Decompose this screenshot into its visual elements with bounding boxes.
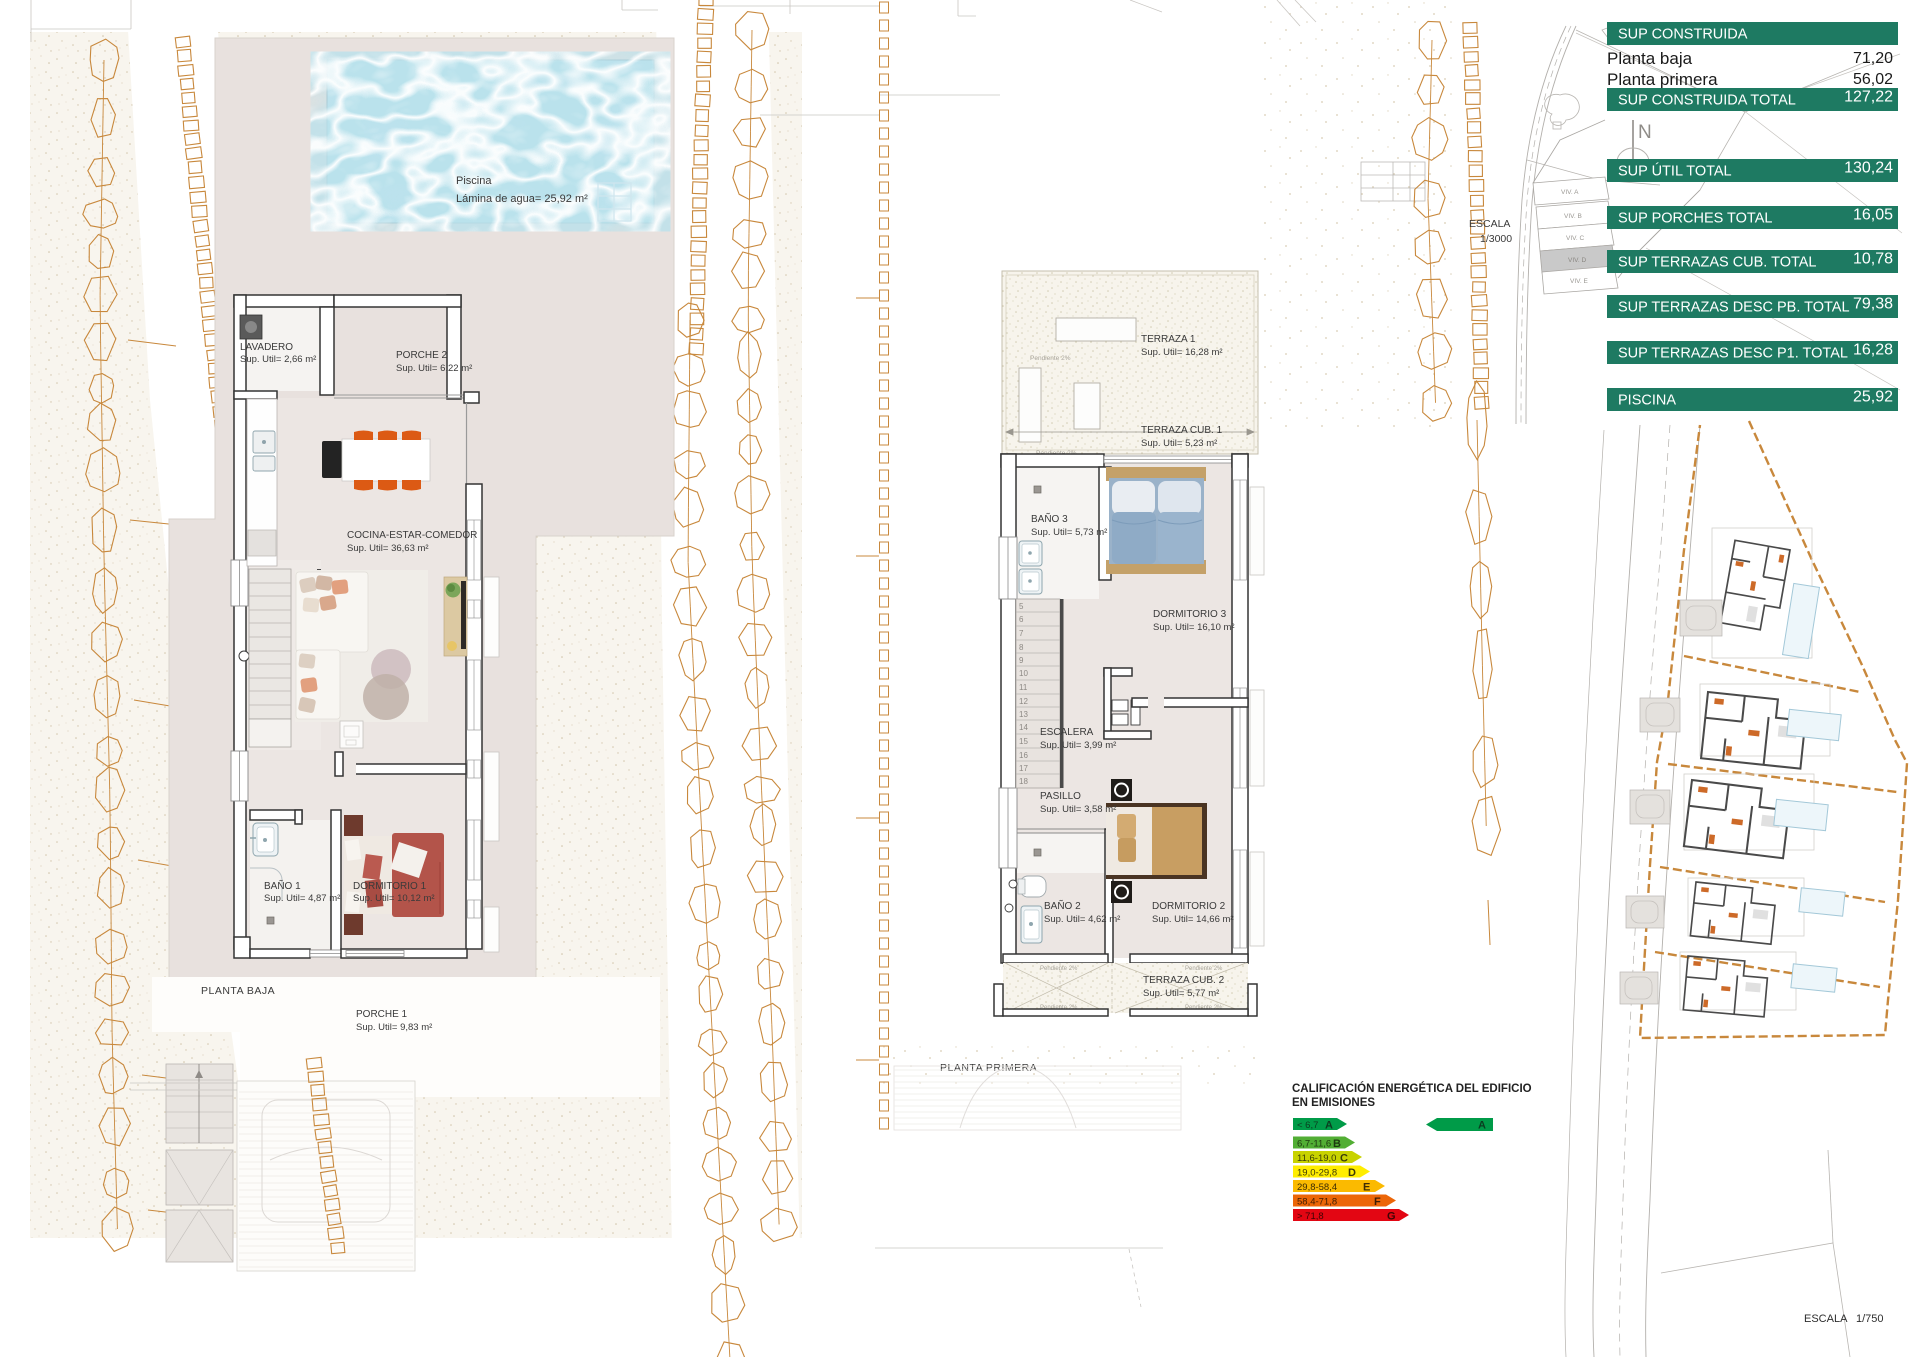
svg-text:11,6-19,0: 11,6-19,0 <box>1297 1153 1336 1164</box>
svg-text:12: 12 <box>1019 697 1028 706</box>
svg-text:56,02: 56,02 <box>1853 71 1893 88</box>
svg-text:TERRAZA 1: TERRAZA 1 <box>1141 334 1196 345</box>
svg-text:15: 15 <box>1019 737 1028 746</box>
svg-text:8: 8 <box>1019 643 1024 652</box>
svg-text:16: 16 <box>1019 751 1028 760</box>
svg-text:SUP CONSTRUIDA: SUP CONSTRUIDA <box>1618 27 1748 43</box>
svg-text:Pendiente 2%: Pendiente 2% <box>1185 966 1223 972</box>
svg-text:Sup. Util= 5,73 m²: Sup. Util= 5,73 m² <box>1031 527 1107 538</box>
svg-text:Piscina: Piscina <box>456 175 492 187</box>
svg-text:Sup. Util= 9,83 m²: Sup. Util= 9,83 m² <box>356 1022 432 1033</box>
svg-text:Sup. Util= 2,66 m²: Sup. Util= 2,66 m² <box>240 354 316 365</box>
svg-text:SUP TERRAZAS CUB. TOTAL: SUP TERRAZAS CUB. TOTAL <box>1618 255 1817 271</box>
svg-text:9: 9 <box>1019 656 1024 665</box>
svg-text:SUP CONSTRUIDA TOTAL: SUP CONSTRUIDA TOTAL <box>1618 93 1796 109</box>
svg-text:G: G <box>1387 1211 1396 1223</box>
svg-text:16,28: 16,28 <box>1853 342 1893 359</box>
svg-text:D: D <box>1348 1167 1356 1179</box>
svg-text:SUP TERRAZAS DESC PB. TOTAL: SUP TERRAZAS DESC PB. TOTAL <box>1618 300 1850 316</box>
svg-text:PORCHE 1: PORCHE 1 <box>356 1009 408 1020</box>
svg-text:PORCHE 2: PORCHE 2 <box>396 350 448 361</box>
svg-text:DORMITORIO 3: DORMITORIO 3 <box>1153 609 1227 620</box>
svg-text:17: 17 <box>1019 764 1028 773</box>
svg-text:Sup. Util= 3,99 m²: Sup. Util= 3,99 m² <box>1040 740 1116 751</box>
svg-text:29,8-58,4: 29,8-58,4 <box>1297 1182 1337 1193</box>
svg-text:Lámina de agua= 25,92 m²: Lámina de agua= 25,92 m² <box>456 193 588 205</box>
svg-text:BAÑO 3: BAÑO 3 <box>1031 512 1068 525</box>
svg-text:6: 6 <box>1019 615 1024 624</box>
svg-text:Sup. Util= 14,66 m²: Sup. Util= 14,66 m² <box>1152 914 1234 925</box>
svg-text:PASILLO: PASILLO <box>1040 791 1081 802</box>
svg-text:VIV. A: VIV. A <box>1561 189 1579 196</box>
svg-text:7: 7 <box>1019 629 1024 638</box>
svg-text:5: 5 <box>1019 602 1024 611</box>
svg-text:BAÑO 1: BAÑO 1 <box>264 879 301 892</box>
svg-text:Planta baja: Planta baja <box>1607 49 1693 68</box>
svg-text:TERRAZA CUB. 1: TERRAZA CUB. 1 <box>1141 425 1223 436</box>
svg-text:10: 10 <box>1019 669 1028 678</box>
svg-text:25,92: 25,92 <box>1853 389 1893 406</box>
svg-text:N: N <box>1638 122 1652 143</box>
svg-text:F: F <box>1374 1196 1381 1208</box>
svg-text:SUP TERRAZAS DESC P1. TOTAL: SUP TERRAZAS DESC P1. TOTAL <box>1618 346 1848 362</box>
svg-text:TERRAZA CUB. 2: TERRAZA CUB. 2 <box>1143 975 1225 986</box>
svg-text:VIV. C: VIV. C <box>1566 235 1584 242</box>
svg-text:LAVADERO: LAVADERO <box>240 342 293 353</box>
svg-text:< 6,7: < 6,7 <box>1297 1120 1318 1131</box>
svg-text:19,0-29,8: 19,0-29,8 <box>1297 1168 1337 1179</box>
svg-text:10,78: 10,78 <box>1853 251 1893 268</box>
svg-text:SUP PORCHES TOTAL: SUP PORCHES TOTAL <box>1618 211 1772 227</box>
svg-text:A: A <box>1325 1120 1333 1132</box>
svg-text:A: A <box>1478 1120 1486 1132</box>
svg-text:VIV. D: VIV. D <box>1568 257 1586 264</box>
svg-text:PISCINA: PISCINA <box>1618 393 1676 409</box>
svg-text:Planta primera: Planta primera <box>1607 70 1718 89</box>
svg-text:6,7-11,6: 6,7-11,6 <box>1297 1139 1331 1150</box>
svg-text:18: 18 <box>1019 777 1028 786</box>
svg-text:Sup. Util= 4,87 m²: Sup. Util= 4,87 m² <box>264 893 340 904</box>
svg-text:1/750: 1/750 <box>1856 1313 1884 1325</box>
svg-text:Sup. Util= 10,12 m²: Sup. Util= 10,12 m² <box>353 893 435 904</box>
svg-text:71,20: 71,20 <box>1853 50 1893 67</box>
svg-text:Sup. Util= 5,23 m²: Sup. Util= 5,23 m² <box>1141 438 1217 449</box>
svg-text:58,4-71,8: 58,4-71,8 <box>1297 1197 1337 1208</box>
svg-text:Sup. Util= 5,77 m²: Sup. Util= 5,77 m² <box>1143 988 1219 999</box>
svg-text:VIV. B: VIV. B <box>1564 213 1582 220</box>
svg-text:ESCALERA: ESCALERA <box>1040 727 1094 738</box>
svg-text:ESCALA: ESCALA <box>1469 218 1510 230</box>
svg-text:Sup. Util= 4,62 m²: Sup. Util= 4,62 m² <box>1044 914 1120 925</box>
svg-text:PLANTA PRIMERA: PLANTA PRIMERA <box>940 1062 1037 1074</box>
svg-text:Pendiente 2%: Pendiente 2% <box>1040 966 1078 972</box>
svg-text:EN EMISIONES: EN EMISIONES <box>1292 1097 1375 1109</box>
svg-text:E: E <box>1363 1182 1370 1194</box>
svg-text:130,24: 130,24 <box>1844 160 1893 177</box>
svg-text:SUP ÚTIL TOTAL: SUP ÚTIL TOTAL <box>1618 163 1732 180</box>
svg-text:14: 14 <box>1019 723 1028 732</box>
svg-text:COCINA-ESTAR-COMEDOR: COCINA-ESTAR-COMEDOR <box>347 530 477 541</box>
svg-text:79,38: 79,38 <box>1853 296 1893 313</box>
svg-text:DORMITORIO 1: DORMITORIO 1 <box>353 881 427 892</box>
svg-text:VIV. E: VIV. E <box>1570 278 1588 285</box>
svg-text:Sup. Util= 3,58 m²: Sup. Util= 3,58 m² <box>1040 804 1116 815</box>
svg-text:127,22: 127,22 <box>1844 89 1893 106</box>
svg-text:13: 13 <box>1019 710 1028 719</box>
svg-text:C: C <box>1340 1153 1348 1165</box>
svg-text:> 71,8: > 71,8 <box>1297 1211 1324 1222</box>
svg-text:1/3000: 1/3000 <box>1480 233 1512 245</box>
svg-text:11: 11 <box>1019 683 1028 692</box>
svg-text:ESCALA: ESCALA <box>1804 1313 1848 1325</box>
svg-text:Pendiente 2%: Pendiente 2% <box>1030 355 1071 362</box>
svg-text:PLANTA BAJA: PLANTA BAJA <box>201 985 275 997</box>
svg-text:DORMITORIO 2: DORMITORIO 2 <box>1152 901 1226 912</box>
svg-text:Sup. Util= 6,22 m²: Sup. Util= 6,22 m² <box>396 363 472 374</box>
svg-text:Sup. Util= 16,10 m²: Sup. Util= 16,10 m² <box>1153 622 1235 633</box>
svg-text:BAÑO 2: BAÑO 2 <box>1044 899 1081 912</box>
svg-text:B: B <box>1333 1138 1341 1150</box>
svg-text:Sup. Util= 36,63 m²: Sup. Util= 36,63 m² <box>347 543 429 554</box>
svg-text:Sup. Util= 16,28 m²: Sup. Util= 16,28 m² <box>1141 347 1223 358</box>
svg-text:16,05: 16,05 <box>1853 207 1893 224</box>
svg-text:CALIFICACIÓN ENERGÉTICA DEL ED: CALIFICACIÓN ENERGÉTICA DEL EDIFICIO <box>1292 1082 1532 1095</box>
